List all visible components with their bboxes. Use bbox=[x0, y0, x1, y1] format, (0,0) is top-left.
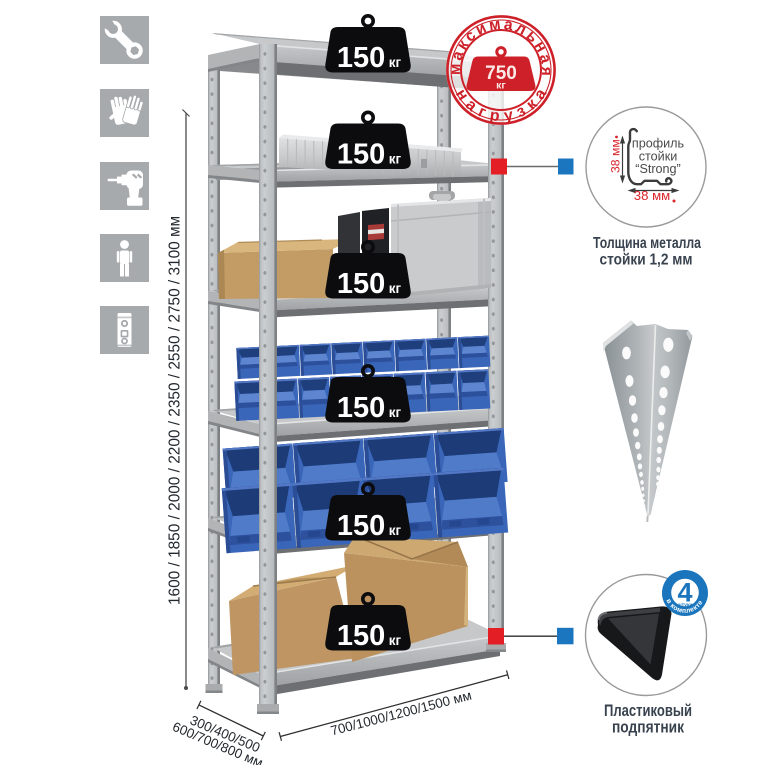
svg-text:38 мм: 38 мм bbox=[634, 188, 670, 203]
svg-text:Пластиковый: Пластиковый bbox=[604, 702, 692, 720]
svg-text:кг: кг bbox=[496, 80, 506, 92]
svg-text:Толщина металла: Толщина металла bbox=[593, 235, 701, 252]
svg-text:“Strong”: “Strong” bbox=[635, 162, 681, 176]
svg-text:стойки 1,2 мм: стойки 1,2 мм bbox=[600, 252, 693, 269]
svg-text:1600 / 1850 / 2000 / 2200 / 23: 1600 / 1850 / 2000 / 2200 / 2350 / 2550 … bbox=[167, 216, 184, 605]
svg-text:38 мм: 38 мм bbox=[609, 139, 623, 173]
svg-text:профиль: профиль bbox=[632, 137, 685, 151]
svg-text:подпятник: подпятник bbox=[612, 719, 685, 737]
